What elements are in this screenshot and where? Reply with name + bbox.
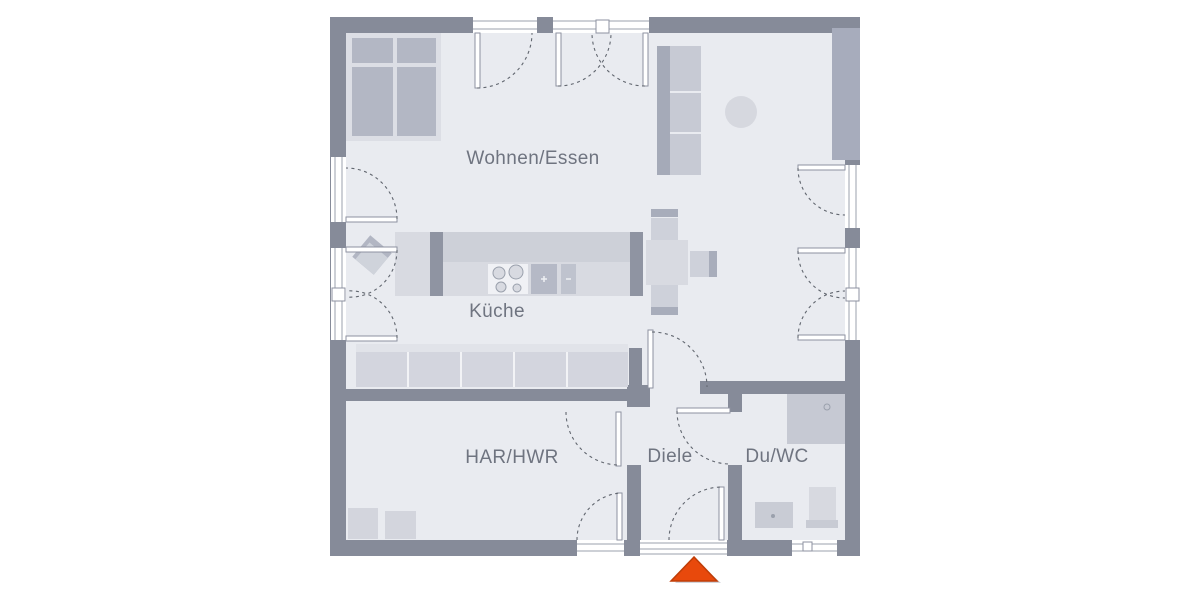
- dryer: [385, 511, 416, 539]
- entrance-arrow-icon: [671, 557, 717, 581]
- room-label-du-wc: Du/WC: [745, 446, 808, 467]
- door-leaf: [719, 487, 724, 540]
- door-leaf: [617, 493, 622, 540]
- bed-pillow: [352, 38, 393, 63]
- sofa-seat: [670, 46, 701, 175]
- door-handle-icon: [596, 20, 609, 33]
- door-leaf: [677, 408, 730, 413]
- dining-table: [646, 240, 688, 285]
- door-leaf: [798, 248, 845, 253]
- wall-diele-top: [629, 348, 642, 389]
- toilet: [806, 487, 838, 528]
- wall-kitchen-har: [346, 389, 627, 401]
- bed-pillow: [397, 38, 436, 63]
- entrance-threshold: [640, 540, 727, 556]
- washing-machine: [348, 508, 378, 539]
- door-leaf: [556, 33, 561, 86]
- dining-chair-top: [651, 209, 678, 240]
- sink: [755, 502, 793, 528]
- window-bottom-duwc: [792, 540, 837, 556]
- sofa-backrest: [657, 46, 670, 175]
- door-leaf: [798, 165, 845, 170]
- dining-chair-bottom: [651, 285, 678, 315]
- door-leaf: [475, 33, 480, 88]
- door-right-single: [845, 165, 860, 228]
- wall-wohnen-duwc: [700, 381, 845, 394]
- door-bottom-har: [577, 540, 624, 556]
- french-door-top: [553, 17, 649, 33]
- door-leaf: [798, 335, 845, 340]
- kitchen-island: [395, 232, 643, 296]
- kitchen-counter-top: [443, 232, 630, 262]
- window-top-single: [473, 17, 537, 33]
- door-leaf: [346, 247, 397, 252]
- round-side-table: [725, 96, 757, 128]
- french-door-left: [331, 248, 346, 340]
- island-end-panel: [630, 232, 643, 296]
- wall-har-diele: [627, 465, 641, 540]
- door-leaf: [616, 412, 621, 466]
- room-label-wohnen-essen: Wohnen/Essen: [466, 148, 599, 169]
- cooktop: [488, 264, 528, 294]
- floorplan-drawing: Wohnen/Essen Küche HAR/HWR Diele Du/WC: [0, 0, 1200, 600]
- french-door-right: [845, 248, 860, 340]
- window-handle-icon: [803, 542, 812, 551]
- sofa: [657, 46, 701, 175]
- wall-diele-duwc: [728, 465, 742, 540]
- room-label-diele: Diele: [647, 446, 692, 467]
- floorplan-canvas: Wohnen/Essen Küche HAR/HWR Diele Du/WC: [0, 0, 1200, 600]
- bed: [346, 33, 441, 141]
- bed-mattress: [397, 67, 436, 136]
- kitchen-cabinets: [356, 344, 628, 387]
- door-leaf: [643, 33, 648, 86]
- dishwasher: [561, 264, 576, 294]
- chimney-block: [832, 28, 860, 160]
- door-leaf: [346, 217, 397, 222]
- room-label-kueche: Küche: [469, 301, 525, 322]
- room-label-har-hwr: HAR/HWR: [465, 447, 559, 468]
- oven: [531, 264, 557, 294]
- door-handle-icon: [846, 288, 859, 301]
- door-left-single: [331, 157, 346, 222]
- door-leaf: [648, 330, 653, 388]
- island-end-panel: [430, 232, 443, 296]
- dining-chair-right: [690, 251, 717, 277]
- bed-mattress: [352, 67, 393, 136]
- door-handle-icon: [332, 288, 345, 301]
- shower: [787, 394, 845, 444]
- door-leaf: [346, 336, 397, 341]
